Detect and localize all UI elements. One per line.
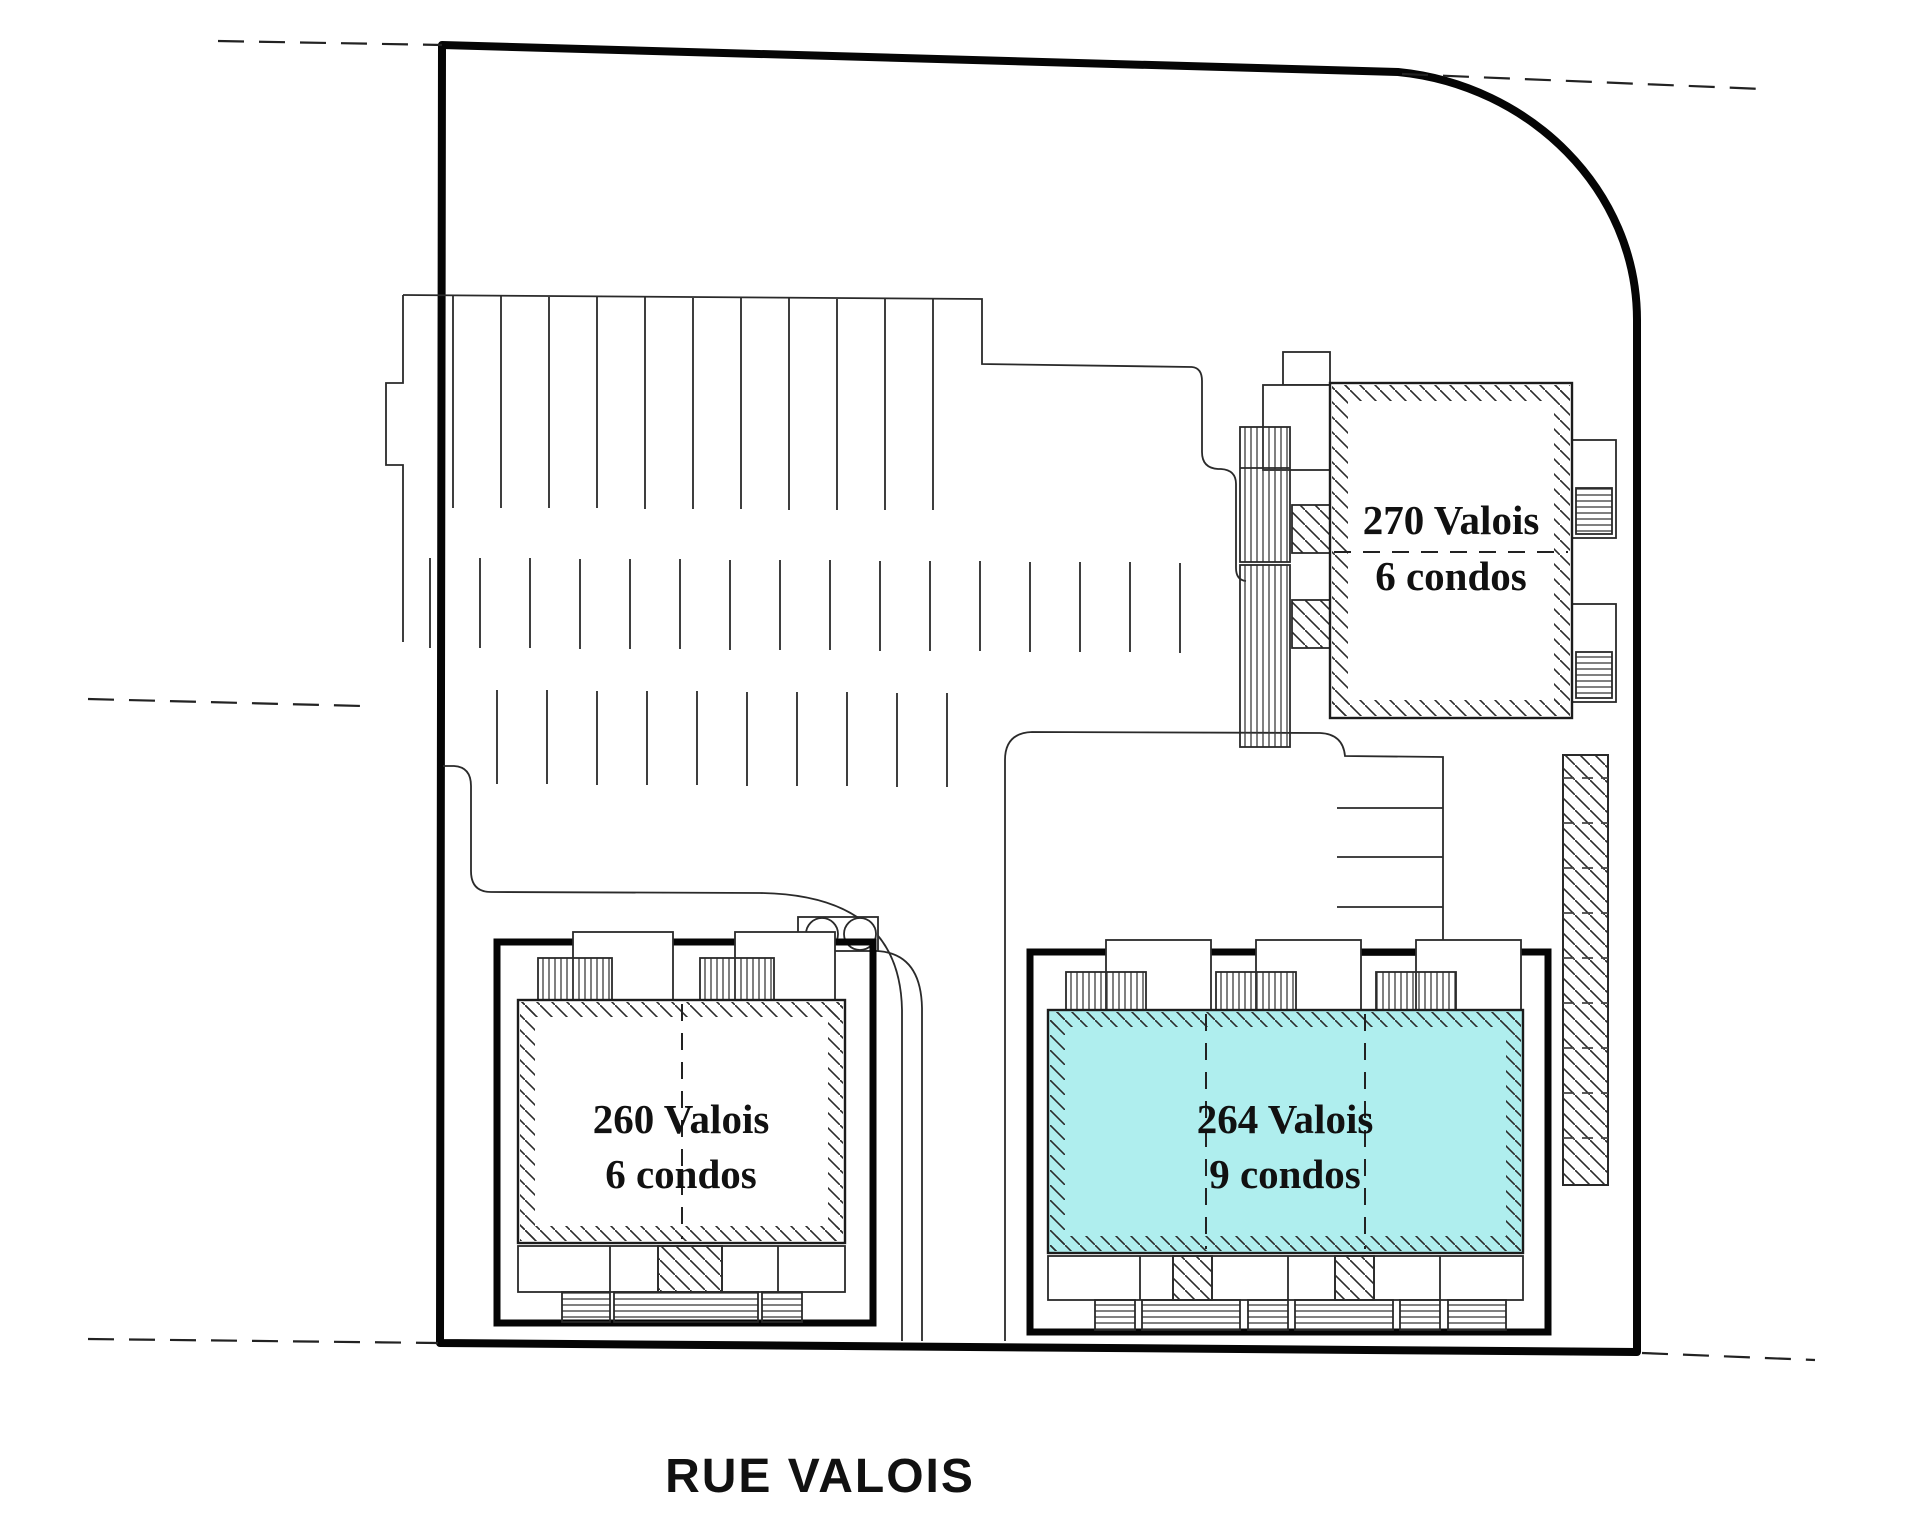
parking-stall-lines-top: [453, 296, 933, 510]
building-264-bottom-entry-hatch-1: [1173, 1256, 1212, 1300]
building-264-bottom-stairs-6: [1448, 1300, 1506, 1330]
building-264-units: 9 condos: [1209, 1151, 1361, 1197]
landscaped-strip-box: [1563, 755, 1608, 1185]
building-270-right-stairs-upper: [1576, 488, 1612, 534]
building-270-left-entry-hatch-upper: [1292, 505, 1330, 553]
building-270-units: 6 condos: [1375, 553, 1527, 599]
building-260-bottom-stairs-3: [762, 1292, 802, 1322]
parking-stall-lines-lower: [497, 690, 947, 787]
building-260-units: 6 condos: [605, 1151, 757, 1197]
parking-corner-path: [1192, 367, 1246, 581]
parking-top-edge: [403, 295, 1192, 367]
walkway-edge-inner: [878, 951, 922, 1341]
parking-stall-lines-middle: [430, 558, 1180, 653]
building-264-top-stairs-3: [1376, 972, 1456, 1010]
building-270-left-entry-hatch-lower: [1292, 600, 1330, 648]
building-264-bottom-stairs-5: [1400, 1300, 1440, 1330]
building-264-bottom-entry-hatch-2: [1335, 1256, 1374, 1300]
building-270-shape[interactable]: [1330, 383, 1572, 718]
building-264-label: 264 Valois: [1197, 1096, 1374, 1142]
street-label: RUE VALOIS: [665, 1450, 975, 1503]
building-264-bottom-stairs-3: [1248, 1300, 1288, 1330]
building-264-top-stairs-2: [1216, 972, 1296, 1010]
building-264-bottom-porch-row: [1048, 1256, 1523, 1300]
parking-stall-lines-right: [1337, 808, 1443, 955]
building-270-left-stairs-upper: [1240, 427, 1290, 562]
building-270-left-stairs-lower: [1240, 565, 1290, 747]
building-264-bottom-stairs-2: [1142, 1300, 1240, 1330]
landscaped-strip: [1563, 755, 1608, 1185]
building-260-top-stairs-2: [700, 958, 774, 1000]
building-264: 264 Valois 9 condos: [1030, 940, 1548, 1332]
parking-left-edge: [386, 295, 403, 642]
building-264-bottom-stairs-1: [1095, 1300, 1135, 1330]
building-264-bottom-stairs-4: [1295, 1300, 1393, 1330]
building-270-right-stairs-lower: [1576, 652, 1612, 698]
building-260-bottom-entry-hatch: [658, 1246, 722, 1292]
building-260-bottom-stairs-1: [562, 1292, 610, 1322]
building-260: 260 Valois 6 condos: [497, 932, 873, 1323]
building-270-label: 270 Valois: [1363, 497, 1540, 543]
building-264-top-stairs-1: [1066, 972, 1146, 1010]
building-270-top-left-porch: [1283, 352, 1330, 385]
building-260-bottom-stairs-2: [614, 1292, 758, 1322]
building-260-label: 260 Valois: [593, 1096, 770, 1142]
site-plan: 270 Valois 6 condos 260: [0, 0, 1920, 1515]
building-260-top-stairs-1: [538, 958, 612, 1000]
building-270: 270 Valois 6 condos: [1240, 352, 1616, 747]
